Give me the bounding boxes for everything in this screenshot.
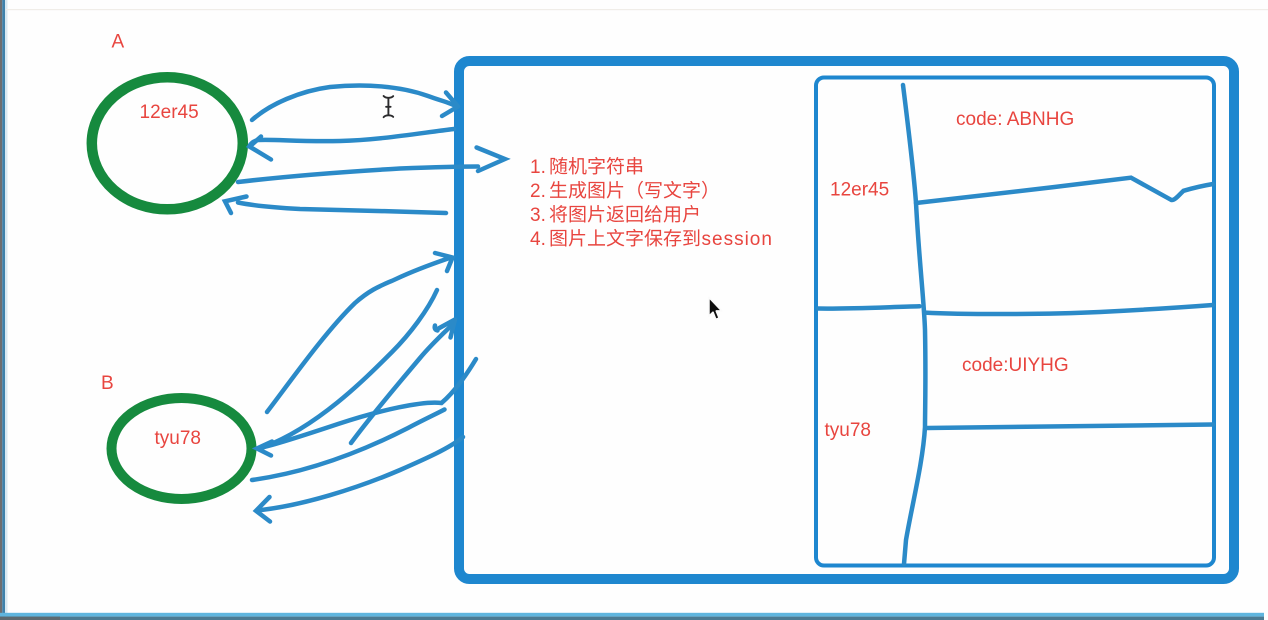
svg-text:3.: 3.: [530, 205, 546, 226]
svg-text:B: B: [101, 373, 114, 394]
svg-text:session: session: [702, 229, 773, 250]
svg-text:A: A: [112, 32, 125, 53]
svg-text:12er45: 12er45: [830, 180, 889, 201]
svg-text:code: ABNHG: code: ABNHG: [956, 109, 1074, 130]
svg-text:12er45: 12er45: [140, 102, 199, 123]
svg-text:4.: 4.: [530, 229, 546, 250]
svg-text:2.: 2.: [530, 181, 546, 202]
svg-text:tyu78: tyu78: [155, 428, 201, 449]
svg-text:code:UIYHG: code:UIYHG: [962, 355, 1069, 376]
svg-text:tyu78: tyu78: [825, 420, 871, 441]
svg-text:1.: 1.: [530, 157, 546, 178]
